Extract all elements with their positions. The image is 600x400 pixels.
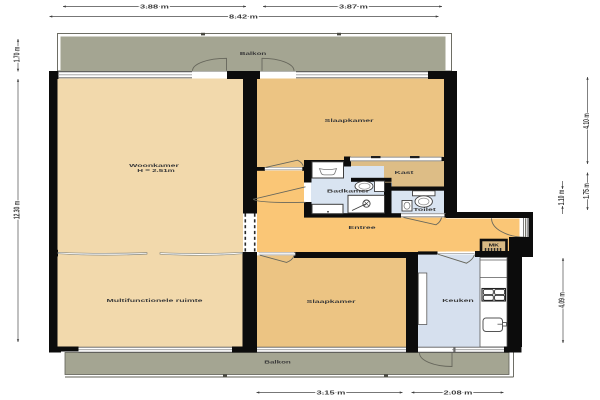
svg-text:1.10 m: 1.10 m: [558, 190, 567, 206]
svg-text:Keuken: Keuken: [442, 299, 474, 304]
svg-text:Entree: Entree: [348, 226, 375, 231]
svg-text:Kast: Kast: [395, 170, 415, 175]
svg-text:3.87 m: 3.87 m: [339, 4, 368, 10]
svg-text:Badkamer: Badkamer: [327, 189, 370, 194]
svg-text:Slaapkamer: Slaapkamer: [325, 118, 374, 123]
svg-text:4.09 m: 4.09 m: [559, 292, 568, 308]
svg-text:1.70 m: 1.70 m: [14, 47, 23, 63]
svg-text:12.30 m: 12.30 m: [14, 201, 23, 219]
svg-text:2.08 m: 2.08 m: [444, 390, 473, 396]
svg-text:Multifunctionele ruimte: Multifunctionele ruimte: [107, 299, 203, 304]
svg-text:4.10 m: 4.10 m: [583, 113, 592, 129]
svg-text:1.75 m: 1.75 m: [583, 183, 592, 199]
svg-text:MK: MK: [489, 244, 499, 248]
svg-text:Toilet: Toilet: [413, 208, 436, 213]
svg-text:3.15 m: 3.15 m: [317, 390, 346, 396]
svg-text:3.88 m: 3.88 m: [140, 4, 169, 10]
svg-text:Balkon: Balkon: [240, 51, 267, 56]
svg-text:Balkon: Balkon: [264, 360, 291, 365]
svg-text:8.42 m: 8.42 m: [229, 14, 258, 20]
svg-text:H = 2.51m: H = 2.51m: [137, 168, 175, 173]
svg-text:Slaapkamer: Slaapkamer: [307, 300, 356, 305]
